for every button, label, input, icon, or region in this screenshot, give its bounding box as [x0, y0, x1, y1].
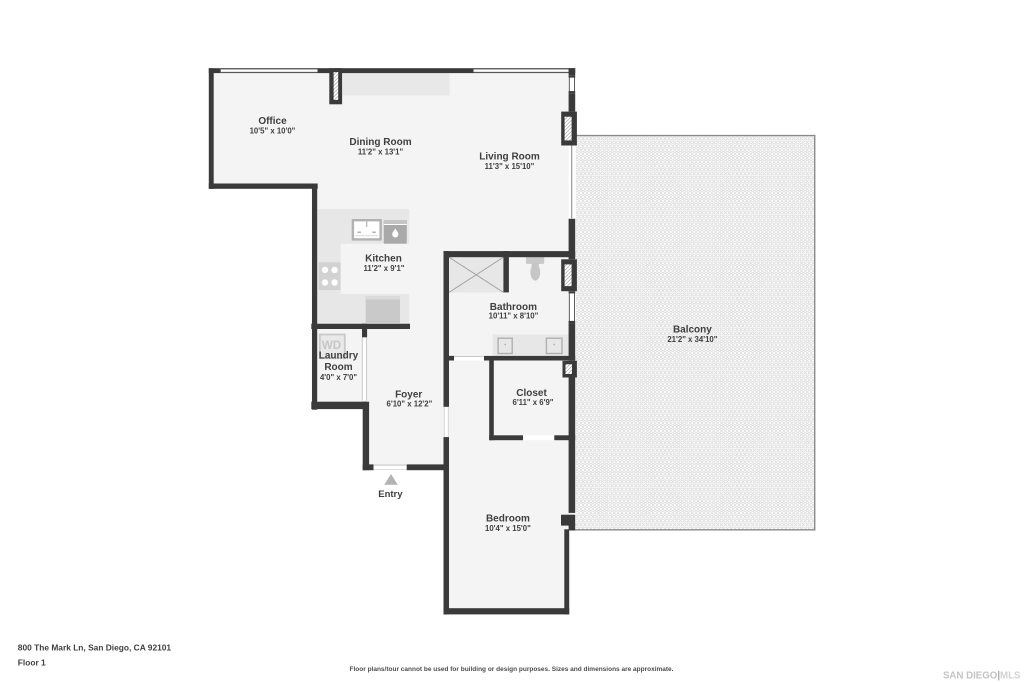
- svg-text:Floor 1: Floor 1: [18, 658, 46, 668]
- svg-text:800 The Mark Ln, San Diego, CA: 800 The Mark Ln, San Diego, CA 92101: [18, 643, 172, 653]
- svg-text:Living Room: Living Room: [479, 152, 540, 163]
- svg-text:Laundry: Laundry: [319, 351, 359, 362]
- svg-text:10'4" x 15'0": 10'4" x 15'0": [485, 524, 531, 533]
- svg-text:4'0" x 7'0": 4'0" x 7'0": [320, 373, 357, 382]
- svg-text:11'2" x 9'1": 11'2" x 9'1": [363, 264, 404, 273]
- svg-text:Closet: Closet: [516, 388, 547, 399]
- svg-text:11'2" x 13'1": 11'2" x 13'1": [358, 148, 404, 157]
- svg-text:Office: Office: [258, 116, 287, 127]
- svg-text:10'11" x 8'10": 10'11" x 8'10": [489, 311, 539, 320]
- svg-text:Floor plans/tour cannot be use: Floor plans/tour cannot be used for buil…: [350, 666, 674, 673]
- svg-text:6'10" x 12'2": 6'10" x 12'2": [387, 400, 433, 409]
- svg-text:11'3" x 15'10": 11'3" x 15'10": [485, 162, 535, 171]
- svg-text:Entry: Entry: [378, 489, 403, 500]
- svg-text:21'2" x 34'10": 21'2" x 34'10": [667, 335, 717, 344]
- svg-text:10'5" x 10'0": 10'5" x 10'0": [250, 126, 296, 135]
- svg-text:Balcony: Balcony: [673, 325, 712, 336]
- svg-text:Dining Room: Dining Room: [349, 137, 411, 148]
- svg-text:SAN DIEGO|MLS: SAN DIEGO|MLS: [943, 670, 1021, 681]
- svg-text:Room: Room: [324, 362, 352, 373]
- svg-text:Kitchen: Kitchen: [365, 254, 402, 265]
- svg-text:Bedroom: Bedroom: [486, 514, 530, 525]
- svg-text:Foyer: Foyer: [395, 389, 422, 400]
- svg-text:6'11" x 6'9": 6'11" x 6'9": [512, 398, 553, 407]
